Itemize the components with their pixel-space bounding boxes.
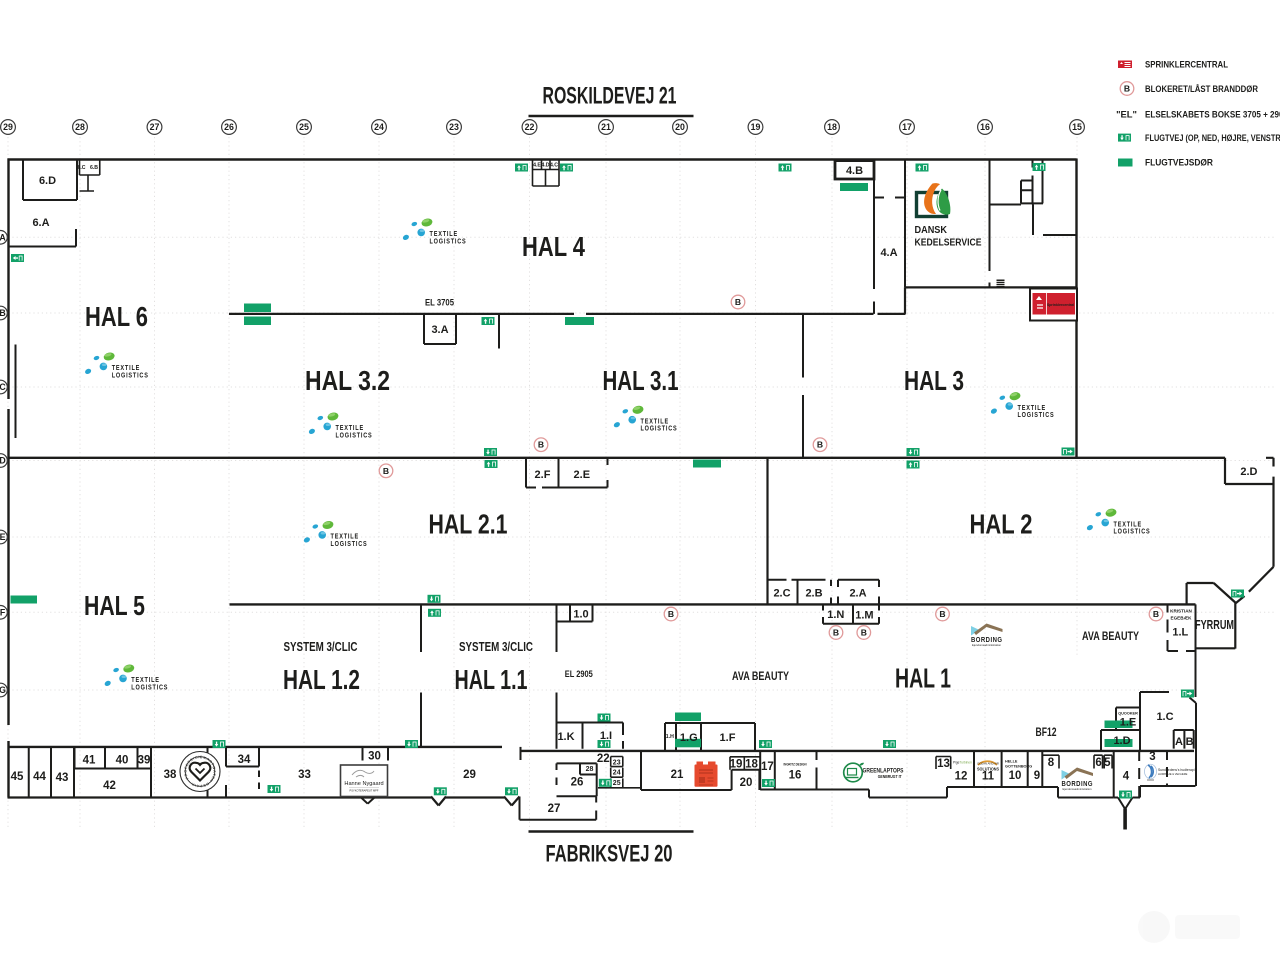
svg-text:19: 19 xyxy=(730,759,743,771)
svg-text:KRISTIAN: KRISTIAN xyxy=(1170,609,1192,614)
svg-text:1.C: 1.C xyxy=(1156,711,1173,723)
svg-text:2.A: 2.A xyxy=(849,588,866,600)
svg-text:1.0: 1.0 xyxy=(573,609,588,621)
svg-text:1.M: 1.M xyxy=(855,610,873,622)
svg-text:39: 39 xyxy=(138,755,151,767)
svg-text:11: 11 xyxy=(982,771,995,783)
svg-text:2.B: 2.B xyxy=(805,588,822,600)
svg-text:B: B xyxy=(939,609,945,619)
svg-text:29: 29 xyxy=(463,769,476,781)
svg-text:FLUGTVEJSDØR: FLUGTVEJSDØR xyxy=(1145,157,1213,168)
svg-text:QUOOKER: QUOOKER xyxy=(1118,712,1138,716)
svg-text:6.D: 6.D xyxy=(39,175,56,187)
svg-text:16: 16 xyxy=(980,122,990,132)
svg-text:B: B xyxy=(735,297,741,307)
svg-text:B: B xyxy=(0,308,6,318)
svg-text:Sprinklercentral: Sprinklercentral xyxy=(1047,303,1074,307)
svg-text:EL 2905: EL 2905 xyxy=(565,669,593,679)
svg-text:1.H: 1.H xyxy=(666,734,674,740)
svg-text:13: 13 xyxy=(937,758,950,770)
svg-text:6.B: 6.B xyxy=(90,165,98,171)
svg-text:24: 24 xyxy=(613,770,621,777)
svg-text:41: 41 xyxy=(83,755,96,767)
svg-text:44: 44 xyxy=(33,771,46,783)
svg-text:PigeTurbinen: PigeTurbinen xyxy=(953,761,972,765)
svg-text:HAL 3.2: HAL 3.2 xyxy=(305,365,390,396)
svg-text:B: B xyxy=(1153,609,1159,619)
svg-text:18: 18 xyxy=(745,759,758,771)
svg-text:A: A xyxy=(0,232,6,242)
svg-text:2.F: 2.F xyxy=(535,469,551,481)
svg-text:EGEBÆK: EGEBÆK xyxy=(1171,616,1193,621)
svg-text:22: 22 xyxy=(597,753,610,765)
svg-text:26: 26 xyxy=(224,122,234,132)
svg-text:18: 18 xyxy=(827,122,837,132)
svg-text:"EL": "EL" xyxy=(1116,109,1137,120)
svg-text:HELLE: HELLE xyxy=(1005,760,1018,764)
svg-text:27: 27 xyxy=(548,803,561,815)
svg-text:HAL 3: HAL 3 xyxy=(904,365,964,396)
svg-text:40: 40 xyxy=(116,755,129,767)
svg-text:1.K: 1.K xyxy=(557,731,574,743)
svg-text:GOTTENBORG: GOTTENBORG xyxy=(1005,764,1032,768)
svg-text:29: 29 xyxy=(3,122,13,132)
svg-text:15: 15 xyxy=(1072,122,1082,132)
svg-text:17: 17 xyxy=(761,761,774,773)
svg-text:F: F xyxy=(0,607,6,617)
svg-text:23: 23 xyxy=(449,122,459,132)
svg-text:B: B xyxy=(1124,84,1130,94)
svg-text:24: 24 xyxy=(374,122,384,132)
svg-text:1.L: 1.L xyxy=(1172,627,1188,639)
svg-text:INGRITZ DESIGN: INGRITZ DESIGN xyxy=(784,762,807,767)
svg-text:4: 4 xyxy=(1123,771,1130,783)
svg-text:HAL 1.2: HAL 1.2 xyxy=(283,664,360,695)
svg-text:1.D: 1.D xyxy=(1113,735,1130,747)
svg-text:FLUGTVEJ (OP, NED, HØJRE, VENS: FLUGTVEJ (OP, NED, HØJRE, VENSTRE) xyxy=(1145,132,1280,143)
svg-text:FABRIKSVEJ 20: FABRIKSVEJ 20 xyxy=(546,841,673,868)
svg-text:HAL 4: HAL 4 xyxy=(522,231,585,262)
svg-text:20: 20 xyxy=(675,122,685,132)
svg-text:D: D xyxy=(0,456,6,466)
svg-text:16: 16 xyxy=(789,770,802,782)
svg-text:1.I: 1.I xyxy=(600,730,612,742)
svg-text:10: 10 xyxy=(1009,770,1022,782)
svg-text:Sundhedens's hudterapi: Sundhedens's hudterapi xyxy=(1158,768,1195,772)
svg-text:HAL 5: HAL 5 xyxy=(84,590,145,621)
svg-text:E: E xyxy=(0,532,6,542)
svg-text:HAL 2.1: HAL 2.1 xyxy=(429,509,508,540)
svg-text:38: 38 xyxy=(164,769,177,781)
svg-text:28: 28 xyxy=(586,766,594,773)
svg-text:PSYKOTERAPEUT MPF: PSYKOTERAPEUT MPF xyxy=(350,789,379,793)
svg-text:22: 22 xyxy=(525,122,535,132)
svg-text:30: 30 xyxy=(368,751,381,763)
svg-text:1.F: 1.F xyxy=(720,732,736,744)
svg-text:KEDELSERVICE: KEDELSERVICE xyxy=(915,238,982,249)
svg-text:B: B xyxy=(817,440,823,450)
svg-text:1.E: 1.E xyxy=(1120,717,1137,729)
svg-text:6: 6 xyxy=(1095,757,1101,769)
svg-text:23: 23 xyxy=(613,759,621,766)
svg-text:2.C: 2.C xyxy=(773,588,790,600)
svg-text:DANSK: DANSK xyxy=(915,225,948,236)
svg-text:34: 34 xyxy=(238,754,251,766)
svg-text:ELSELSKABETS BOKSE 3705 + 2905: ELSELSKABETS BOKSE 3705 + 2905 xyxy=(1145,109,1280,120)
svg-text:2.D: 2.D xyxy=(1240,466,1257,478)
svg-text:21: 21 xyxy=(671,769,684,781)
svg-text:EL 3705: EL 3705 xyxy=(425,298,454,308)
svg-text:2.E: 2.E xyxy=(574,469,591,481)
svg-text:HAL 6: HAL 6 xyxy=(85,301,148,332)
svg-text:G: G xyxy=(0,685,6,695)
svg-text:28: 28 xyxy=(75,122,85,132)
svg-text:AVA BEAUTY: AVA BEAUTY xyxy=(1082,629,1139,643)
svg-text:43: 43 xyxy=(56,772,69,784)
svg-text:6.A: 6.A xyxy=(32,217,49,229)
svg-text:6.C: 6.C xyxy=(77,165,85,171)
svg-text:BF12: BF12 xyxy=(1036,725,1057,739)
svg-text:9: 9 xyxy=(1034,770,1040,782)
svg-text:BLOKERET/LÅST BRANDDØR: BLOKERET/LÅST BRANDDØR xyxy=(1145,83,1258,94)
svg-text:4.E: 4.E xyxy=(533,163,541,169)
svg-text:3.A: 3.A xyxy=(431,324,448,336)
svg-text:20: 20 xyxy=(740,777,753,789)
svg-text:HUDPLEJE & VELVÆRE: HUDPLEJE & VELVÆRE xyxy=(1158,772,1188,776)
svg-text:45: 45 xyxy=(11,771,24,783)
svg-text:17: 17 xyxy=(902,122,912,132)
svg-text:8: 8 xyxy=(1048,757,1055,769)
svg-text:4.C: 4.C xyxy=(550,163,558,169)
svg-text:AVA BEAUTY: AVA BEAUTY xyxy=(732,669,789,683)
svg-text:27: 27 xyxy=(150,122,160,132)
svg-text:Hanne Nygaard: Hanne Nygaard xyxy=(344,781,383,787)
svg-text:HAL 1.1: HAL 1.1 xyxy=(455,664,528,695)
svg-text:HAL 1: HAL 1 xyxy=(895,663,951,694)
svg-text:FYRRUM: FYRRUM xyxy=(1195,618,1234,632)
svg-text:B: B xyxy=(383,466,389,476)
svg-text:4.B: 4.B xyxy=(846,165,863,177)
svg-text:12: 12 xyxy=(955,771,968,783)
svg-text:A: A xyxy=(1175,736,1183,748)
svg-text:ROSKILDEVEJ 21: ROSKILDEVEJ 21 xyxy=(543,83,677,110)
svg-text:SYSTEM 3/CLIC: SYSTEM 3/CLIC xyxy=(284,639,358,654)
svg-text:B: B xyxy=(833,628,839,638)
svg-text:3: 3 xyxy=(1149,751,1155,763)
svg-text:5: 5 xyxy=(1104,757,1111,769)
svg-text:1.N: 1.N xyxy=(827,609,844,621)
svg-text:OCEAN AND AIR: OCEAN AND AIR xyxy=(977,762,999,766)
svg-text:HAL 3.1: HAL 3.1 xyxy=(603,365,679,396)
svg-text:1.G: 1.G xyxy=(680,732,698,744)
svg-text:SYSTEM 3/CLIC: SYSTEM 3/CLIC xyxy=(459,639,533,654)
svg-text:B: B xyxy=(1186,736,1194,748)
svg-text:SOLUTIONS: SOLUTIONS xyxy=(977,767,999,772)
svg-text:B: B xyxy=(538,440,544,450)
svg-text:33: 33 xyxy=(298,769,311,781)
svg-text:19: 19 xyxy=(751,122,761,132)
svg-text:25: 25 xyxy=(613,780,621,787)
svg-text:21: 21 xyxy=(601,122,611,132)
svg-text:4.D: 4.D xyxy=(541,163,549,169)
svg-text:4.A: 4.A xyxy=(880,247,897,259)
svg-text:25: 25 xyxy=(299,122,309,132)
svg-text:HAL 2: HAL 2 xyxy=(970,509,1033,540)
svg-text:C: C xyxy=(0,382,6,392)
svg-text:26: 26 xyxy=(571,777,584,789)
svg-text:B: B xyxy=(861,628,867,638)
svg-text:B: B xyxy=(668,609,674,619)
svg-text:SPRINKLERCENTRAL: SPRINKLERCENTRAL xyxy=(1145,59,1228,70)
svg-text:GENBRUGT IT: GENBRUGT IT xyxy=(878,774,902,779)
svg-text:42: 42 xyxy=(103,780,116,792)
